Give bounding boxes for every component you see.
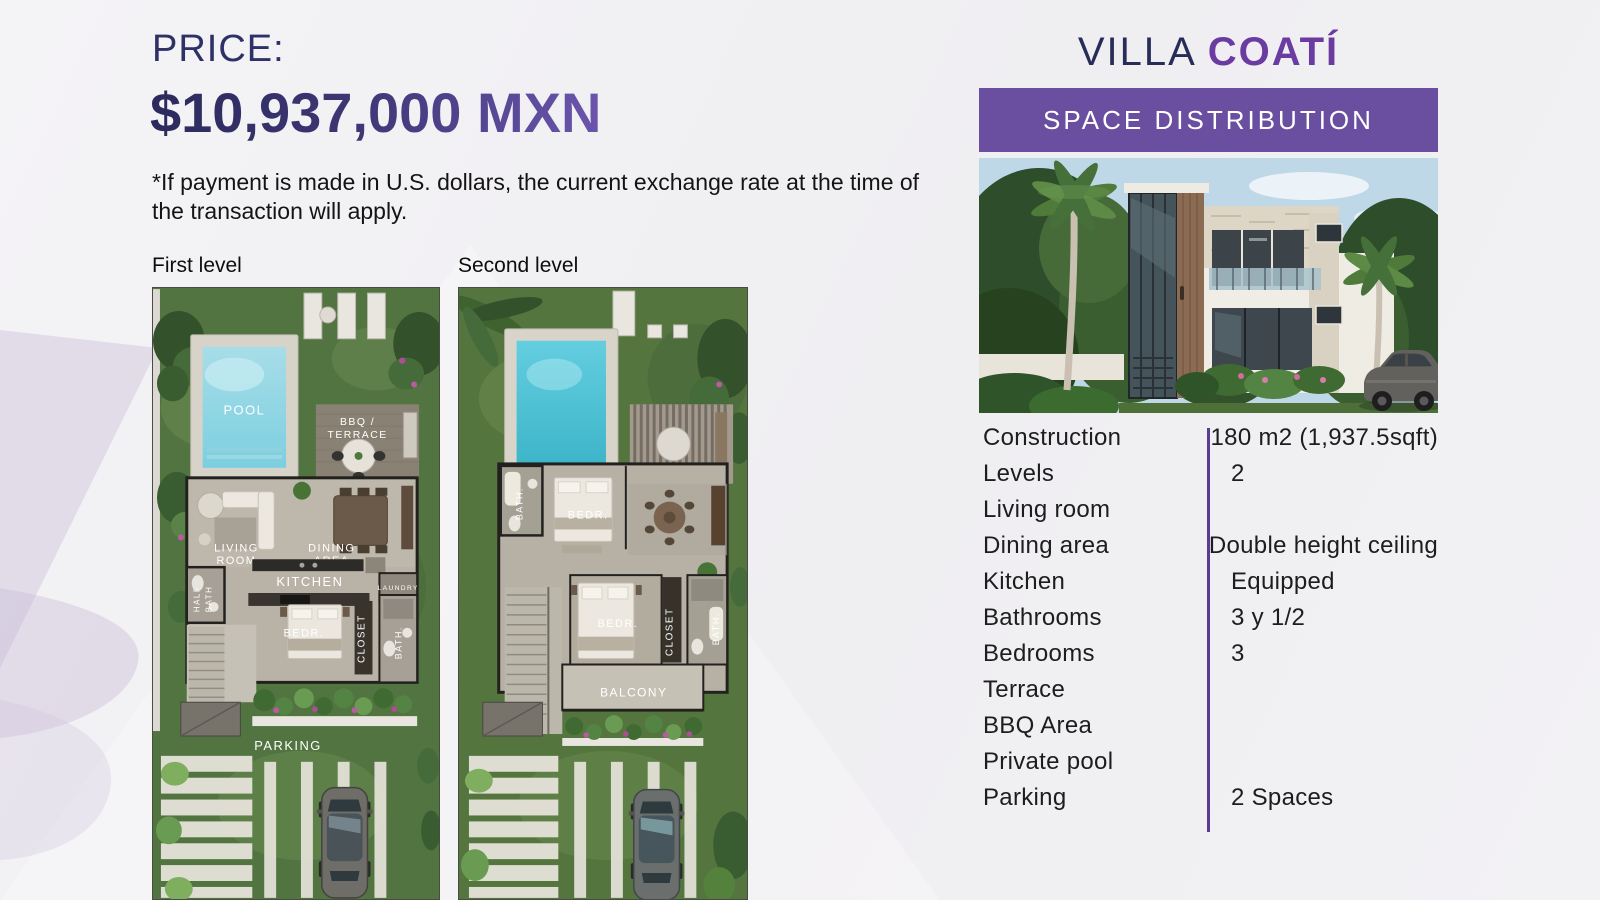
bbq-label-line2: TERRACE <box>327 430 387 441</box>
spec-label: Bathrooms <box>979 604 1207 632</box>
space-distribution-banner: SPACE DISTRIBUTION <box>979 88 1438 152</box>
half-bath-label-line1: HALF <box>193 586 202 612</box>
first-level-label: First level <box>152 252 440 287</box>
second-level-floorplan: BATH. BEDR. <box>458 287 748 900</box>
villa-title-bold: COATÍ <box>1208 30 1339 74</box>
first-level-floorplan: POOL BBQ / TERRACE <box>152 287 440 900</box>
bedroom-upper-label: BEDR. <box>568 510 609 522</box>
spec-label: Parking <box>979 784 1207 812</box>
living-room-label-line1: LIVING <box>214 542 259 554</box>
spec-label: Construction <box>979 424 1187 452</box>
pool-label: POOL <box>223 402 265 417</box>
bath-label: BATH. <box>711 612 721 645</box>
spec-value: Double height ceiling <box>1209 532 1438 560</box>
spec-label: Dining area <box>979 532 1185 560</box>
laundry-label: LAUNDRY <box>378 585 419 592</box>
spec-value: Equipped <box>1231 568 1335 596</box>
closet-label: CLOSET <box>665 607 676 656</box>
villa-exterior-photo <box>979 158 1438 413</box>
bath-upper-label: BATH. <box>515 487 525 520</box>
lounge-chairs <box>304 293 385 339</box>
spec-table: Construction180 m2 (1,937.5sqft) Levels2… <box>979 420 1438 816</box>
spec-label: Living room <box>979 496 1207 524</box>
price-label: PRICE: <box>152 28 285 71</box>
dining-area-label-line1: DINING <box>308 542 355 554</box>
spec-value: 180 m2 (1,937.5sqft) <box>1211 424 1438 452</box>
storage-pad <box>181 702 241 736</box>
balcony-label: BALCONY <box>600 685 667 699</box>
price-value: $10,937,000 MXN <box>150 80 601 145</box>
second-level-label: Second level <box>458 252 748 287</box>
spec-label: Levels <box>979 460 1207 488</box>
pool <box>505 329 618 480</box>
table-divider-line <box>1207 428 1210 832</box>
car-top-view <box>317 788 373 898</box>
kitchen-label: KITCHEN <box>276 574 343 589</box>
spec-label: BBQ Area <box>979 712 1207 740</box>
bbq-terrace: BBQ / TERRACE <box>316 404 419 481</box>
parking-label: PARKING <box>254 738 322 753</box>
spec-value: 3 y 1/2 <box>1231 604 1305 632</box>
spec-value: 2 Spaces <box>1231 784 1333 812</box>
storage-pad <box>483 702 543 736</box>
spec-label: Private pool <box>979 748 1207 776</box>
pool: POOL <box>191 335 298 480</box>
second-level-plan-block: Second level <box>458 252 748 900</box>
brochure-page: PRICE: $10,937,000 MXN *If payment is ma… <box>0 0 1600 900</box>
spec-value: 3 <box>1231 640 1245 668</box>
balcony: BALCONY <box>562 665 703 711</box>
bath-label: BATH. <box>393 626 403 659</box>
spec-label: Terrace <box>979 676 1207 704</box>
villa-title: VILLA COATÍ <box>979 30 1438 75</box>
bbq-label-line1: BBQ / <box>340 417 375 428</box>
half-bath-label-line2: BATH <box>205 586 214 613</box>
side-patio-stairs <box>187 625 257 702</box>
spec-label: Kitchen <box>979 568 1207 596</box>
payment-disclaimer: *If payment is made in U.S. dollars, the… <box>152 168 954 227</box>
spec-value: 2 <box>1231 460 1245 488</box>
first-level-plan-block: First level <box>152 252 440 900</box>
closet-label: CLOSET <box>357 614 368 663</box>
car-top-view <box>629 790 685 900</box>
bedroom-label: BEDR. <box>284 628 325 640</box>
villa-title-regular: VILLA <box>1078 30 1195 74</box>
living-room-label-line2: ROOM <box>216 555 256 567</box>
spec-label: Bedrooms <box>979 640 1207 668</box>
bedroom-main-label: BEDR. <box>598 618 639 630</box>
